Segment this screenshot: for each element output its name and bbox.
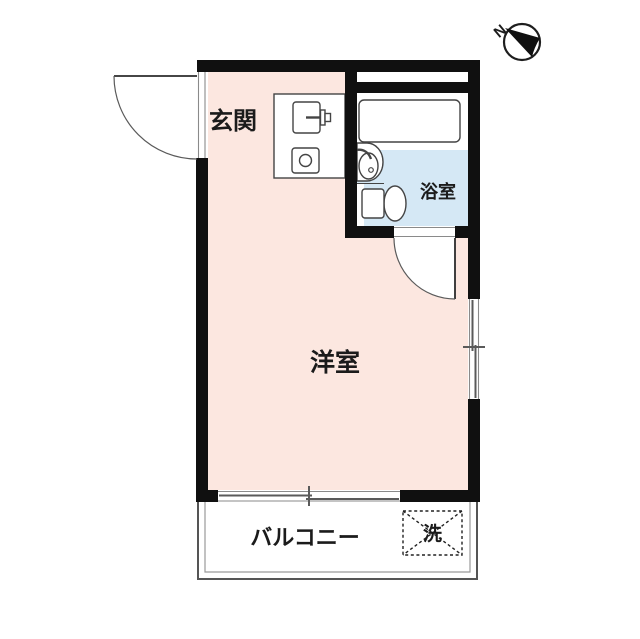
toilet-tank xyxy=(362,189,384,218)
entrance-door-arc xyxy=(114,76,197,159)
bathroom-label: 浴室 xyxy=(420,181,456,202)
wall-bathroom-bottom-right xyxy=(455,226,480,238)
balcony-label: バルコニー xyxy=(250,525,360,550)
kitchen-faucet-tab-icon xyxy=(325,114,331,122)
entrance-label: 玄関 xyxy=(209,107,257,135)
floorplan-svg: N 玄関 洋室 浴室 バルコニー 洗 xyxy=(0,0,640,639)
wall-left xyxy=(196,158,208,502)
entrance-door xyxy=(114,72,205,159)
wall-bathroom-inner-top xyxy=(357,82,468,93)
wall-bathroom-bottom-left xyxy=(345,226,394,238)
wall-bottom-right xyxy=(400,490,480,502)
kitchen-burner-ring xyxy=(300,155,312,167)
toilet-bowl xyxy=(384,186,406,221)
wall-right-upper xyxy=(468,60,480,299)
wall-bathroom-vertical xyxy=(345,60,357,226)
washer-label: 洗 xyxy=(423,522,442,545)
kitchen-counter xyxy=(274,94,345,178)
bathroom-sink-basin xyxy=(359,153,378,179)
western-room-label: 洋室 xyxy=(310,348,360,377)
wall-bottom-left xyxy=(196,490,218,502)
entrance-opening xyxy=(196,72,208,158)
floorplan-page: N 玄関 洋室 浴室 バルコニー 洗 xyxy=(0,0,640,639)
bathtub xyxy=(359,100,460,142)
wall-top xyxy=(197,60,480,72)
compass: N xyxy=(491,21,540,60)
wall-right-lower xyxy=(468,399,480,502)
